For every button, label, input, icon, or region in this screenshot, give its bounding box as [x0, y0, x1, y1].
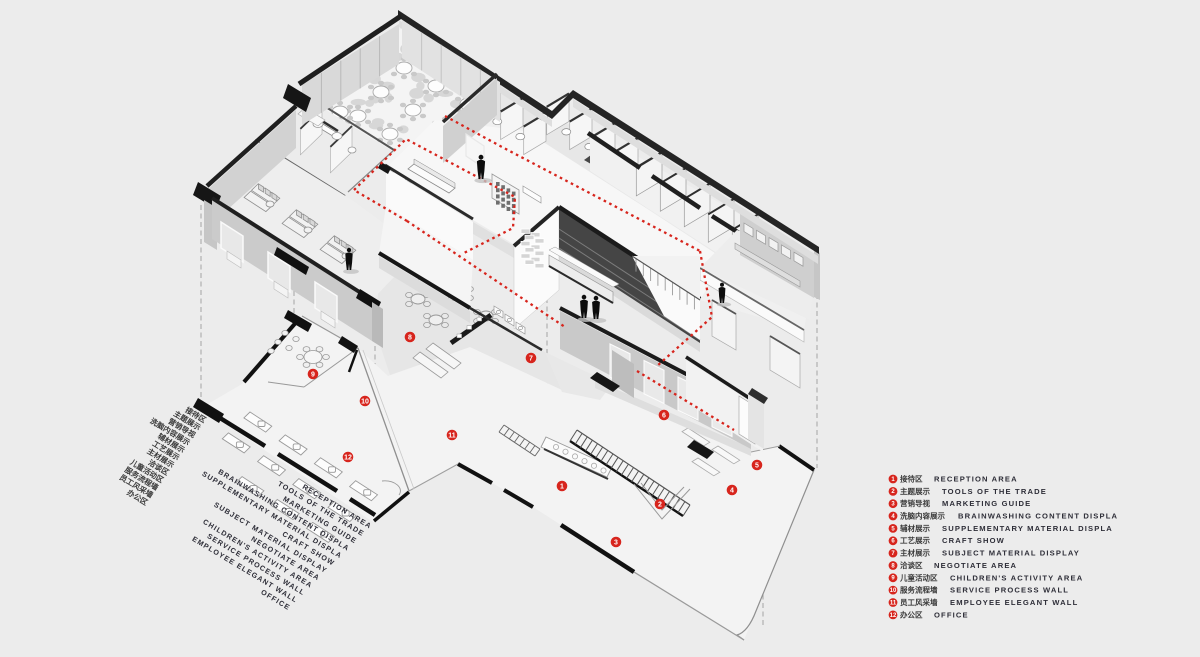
svg-text:7: 7 [529, 355, 533, 362]
svg-text:SUBJECT MATERIAL DISPLAY: SUBJECT MATERIAL DISPLAY [942, 549, 1080, 558]
svg-text:CHILDREN'S ACTIVITY AREA: CHILDREN'S ACTIVITY AREA [950, 573, 1083, 582]
svg-text:1: 1 [560, 483, 564, 490]
svg-text:10: 10 [361, 398, 369, 405]
svg-text:洽谈区: 洽谈区 [900, 560, 923, 570]
svg-text:8: 8 [408, 334, 412, 341]
svg-text:TOOLS OF THE TRADE: TOOLS OF THE TRADE [942, 487, 1047, 496]
svg-text:RECEPTION AREA: RECEPTION AREA [934, 475, 1018, 484]
svg-text:SERVICE PROCESS WALL: SERVICE PROCESS WALL [950, 586, 1069, 595]
svg-text:主材展示: 主材展示 [900, 548, 930, 558]
svg-text:11: 11 [448, 432, 456, 439]
svg-text:办公区: 办公区 [900, 609, 923, 619]
svg-text:6: 6 [662, 412, 666, 419]
svg-text:2: 2 [658, 501, 662, 508]
svg-text:主题展示: 主题展示 [900, 486, 930, 496]
svg-text:EMPLOYEE ELEGANT WALL: EMPLOYEE ELEGANT WALL [950, 598, 1078, 607]
svg-text:3: 3 [614, 539, 618, 546]
svg-text:NEGOTIATE AREA: NEGOTIATE AREA [934, 561, 1017, 570]
svg-text:5: 5 [755, 462, 759, 469]
svg-text:营销导视: 营销导视 [900, 498, 930, 508]
svg-text:接待区: 接待区 [900, 474, 923, 484]
svg-text:12: 12 [344, 454, 352, 461]
svg-text:BRAINWASHING CONTENT DISPLA: BRAINWASHING CONTENT DISPLA [958, 512, 1118, 521]
svg-text:工艺展示: 工艺展示 [900, 535, 930, 545]
svg-text:员工风采墙: 员工风采墙 [900, 597, 938, 607]
svg-text:儿童活动区: 儿童活动区 [899, 572, 938, 582]
svg-text:SUPPLEMENTARY MATERIAL DISPLA: SUPPLEMENTARY MATERIAL DISPLA [942, 524, 1113, 533]
svg-text:4: 4 [730, 487, 734, 494]
svg-text:OFFICE: OFFICE [934, 610, 969, 619]
svg-text:洗脑内容展示: 洗脑内容展示 [900, 511, 945, 521]
svg-text:MARKETING GUIDE: MARKETING GUIDE [942, 499, 1031, 508]
svg-text:9: 9 [311, 371, 315, 378]
svg-text:11: 11 [890, 600, 897, 606]
svg-text:12: 12 [890, 613, 897, 619]
svg-text:辅材展示: 辅材展示 [900, 523, 930, 533]
svg-text:CRAFT SHOW: CRAFT SHOW [942, 536, 1005, 545]
svg-text:服务流程墙: 服务流程墙 [900, 585, 938, 595]
svg-text:10: 10 [890, 588, 897, 594]
